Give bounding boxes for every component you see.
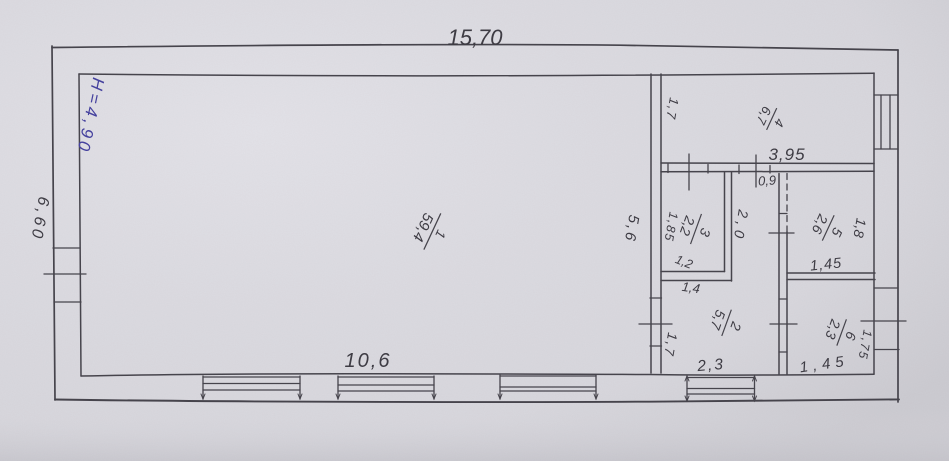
svg-text:1,4: 1,4 — [681, 279, 701, 296]
svg-text:0,9: 0,9 — [757, 172, 776, 188]
svg-text:1,8: 1,8 — [850, 217, 869, 239]
svg-text:3,95: 3,95 — [768, 145, 805, 164]
svg-text:15,70: 15,70 — [447, 25, 503, 50]
svg-text:2,3: 2,3 — [696, 356, 726, 375]
svg-text:1,45: 1,45 — [809, 255, 843, 274]
svg-text:10,6: 10,6 — [345, 350, 392, 372]
